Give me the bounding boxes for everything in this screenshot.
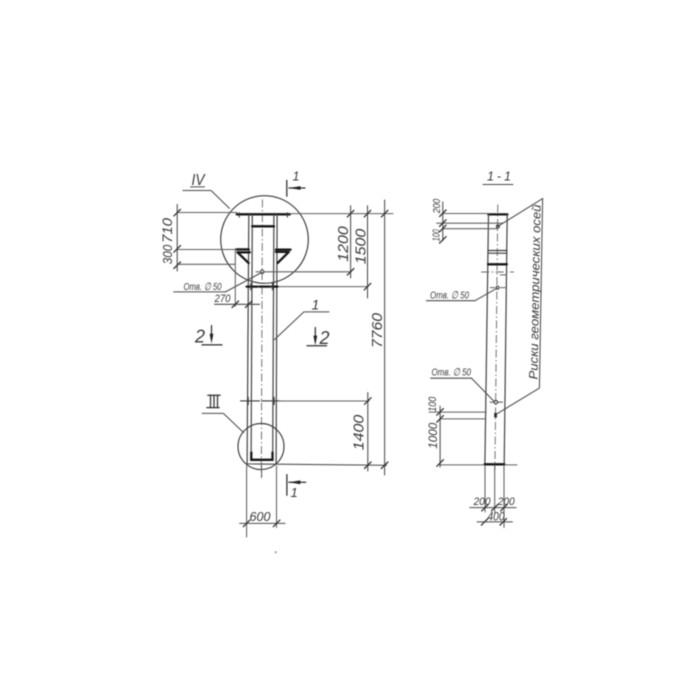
svg-text:200: 200 bbox=[497, 496, 516, 508]
svg-text:2: 2 bbox=[319, 328, 330, 348]
svg-text:Отв. ∅ 50: Отв. ∅ 50 bbox=[430, 289, 469, 301]
svg-text:100: 100 bbox=[427, 396, 439, 412]
svg-text:1000: 1000 bbox=[428, 422, 440, 449]
svg-text:600: 600 bbox=[250, 509, 272, 524]
svg-text:270: 270 bbox=[214, 293, 232, 305]
svg-text:Отв. ∅ 50: Отв. ∅ 50 bbox=[184, 281, 222, 293]
svg-text:7760: 7760 bbox=[369, 312, 386, 348]
svg-text:2: 2 bbox=[194, 327, 205, 347]
svg-text:1: 1 bbox=[293, 170, 300, 184]
svg-text:300: 300 bbox=[161, 245, 175, 265]
svg-text:710: 710 bbox=[159, 218, 175, 243]
svg-text:Отв. ∅ 50: Отв. ∅ 50 bbox=[432, 367, 472, 379]
svg-text:1200: 1200 bbox=[335, 226, 352, 262]
svg-text:200: 200 bbox=[431, 199, 443, 214]
svg-text:1: 1 bbox=[312, 297, 320, 313]
svg-text:1500: 1500 bbox=[352, 228, 369, 264]
svg-text:100: 100 bbox=[431, 229, 443, 241]
svg-text:1: 1 bbox=[291, 485, 298, 500]
svg-text:200: 200 bbox=[473, 496, 492, 508]
svg-text:1400: 1400 bbox=[350, 414, 367, 450]
svg-text:1-1: 1-1 bbox=[487, 170, 511, 184]
